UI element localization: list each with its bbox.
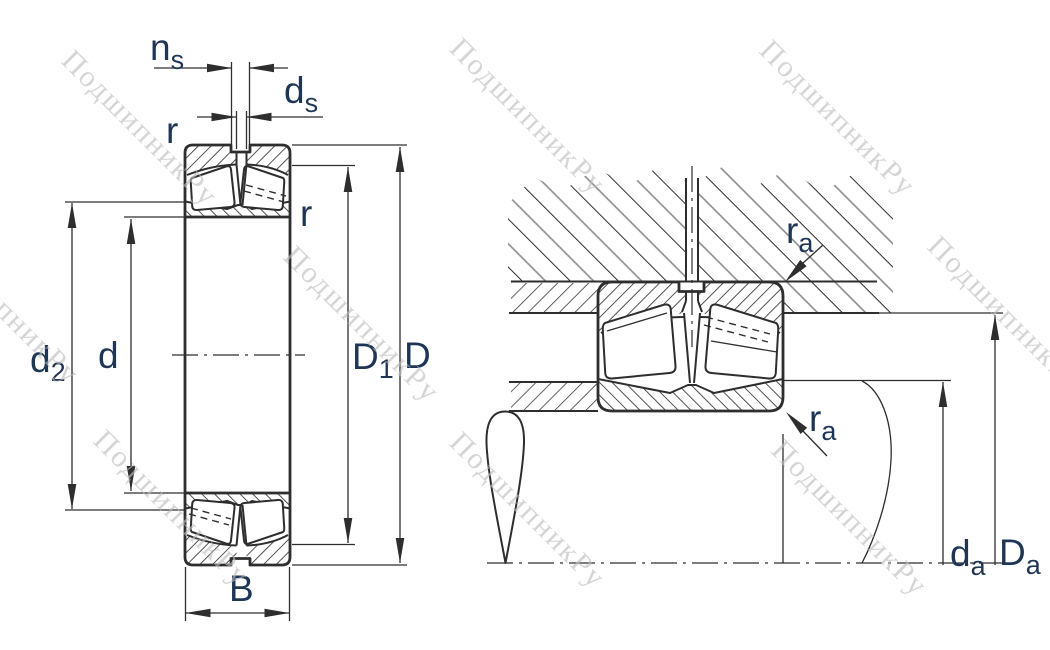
dimension-ds: ds	[197, 70, 323, 149]
watermark-text: ПодшипникРу	[443, 426, 612, 595]
label-ns: ns	[150, 27, 184, 75]
label-ra-shaft: ra	[809, 398, 837, 446]
mounted-bearing	[598, 282, 783, 411]
label-da: da	[950, 533, 987, 581]
watermark-text: ПодшипникРу	[765, 434, 934, 603]
label-d: d	[98, 335, 119, 376]
rollers-right	[603, 305, 778, 379]
watermark-text: ПодшипникРу	[921, 230, 1050, 399]
watermark-text: ПодшипникРу	[55, 44, 224, 213]
label-ds: ds	[284, 70, 318, 118]
watermark-text: ПодшипникРу	[0, 222, 87, 391]
drawing-svg: ns ds r r d2 d D1	[0, 0, 1050, 650]
shaft-abutment-sleeve	[509, 382, 598, 411]
bearing-dimension-drawing: ns ds r r d2 d D1	[0, 0, 1050, 650]
watermarks: ПодшипникРу ПодшипникРу ПодшипникРу Подш…	[0, 32, 1050, 603]
left-view-bearing-section	[172, 145, 305, 565]
watermark-text: ПодшипникРу	[277, 240, 446, 409]
housing-cover-ring	[509, 283, 598, 313]
label-Da: Da	[999, 532, 1042, 580]
watermark-text: ПодшипникРу	[443, 32, 612, 201]
right-view-mounting-section: ra ra da Da	[486, 166, 1041, 581]
label-r-inner: r	[300, 193, 312, 234]
